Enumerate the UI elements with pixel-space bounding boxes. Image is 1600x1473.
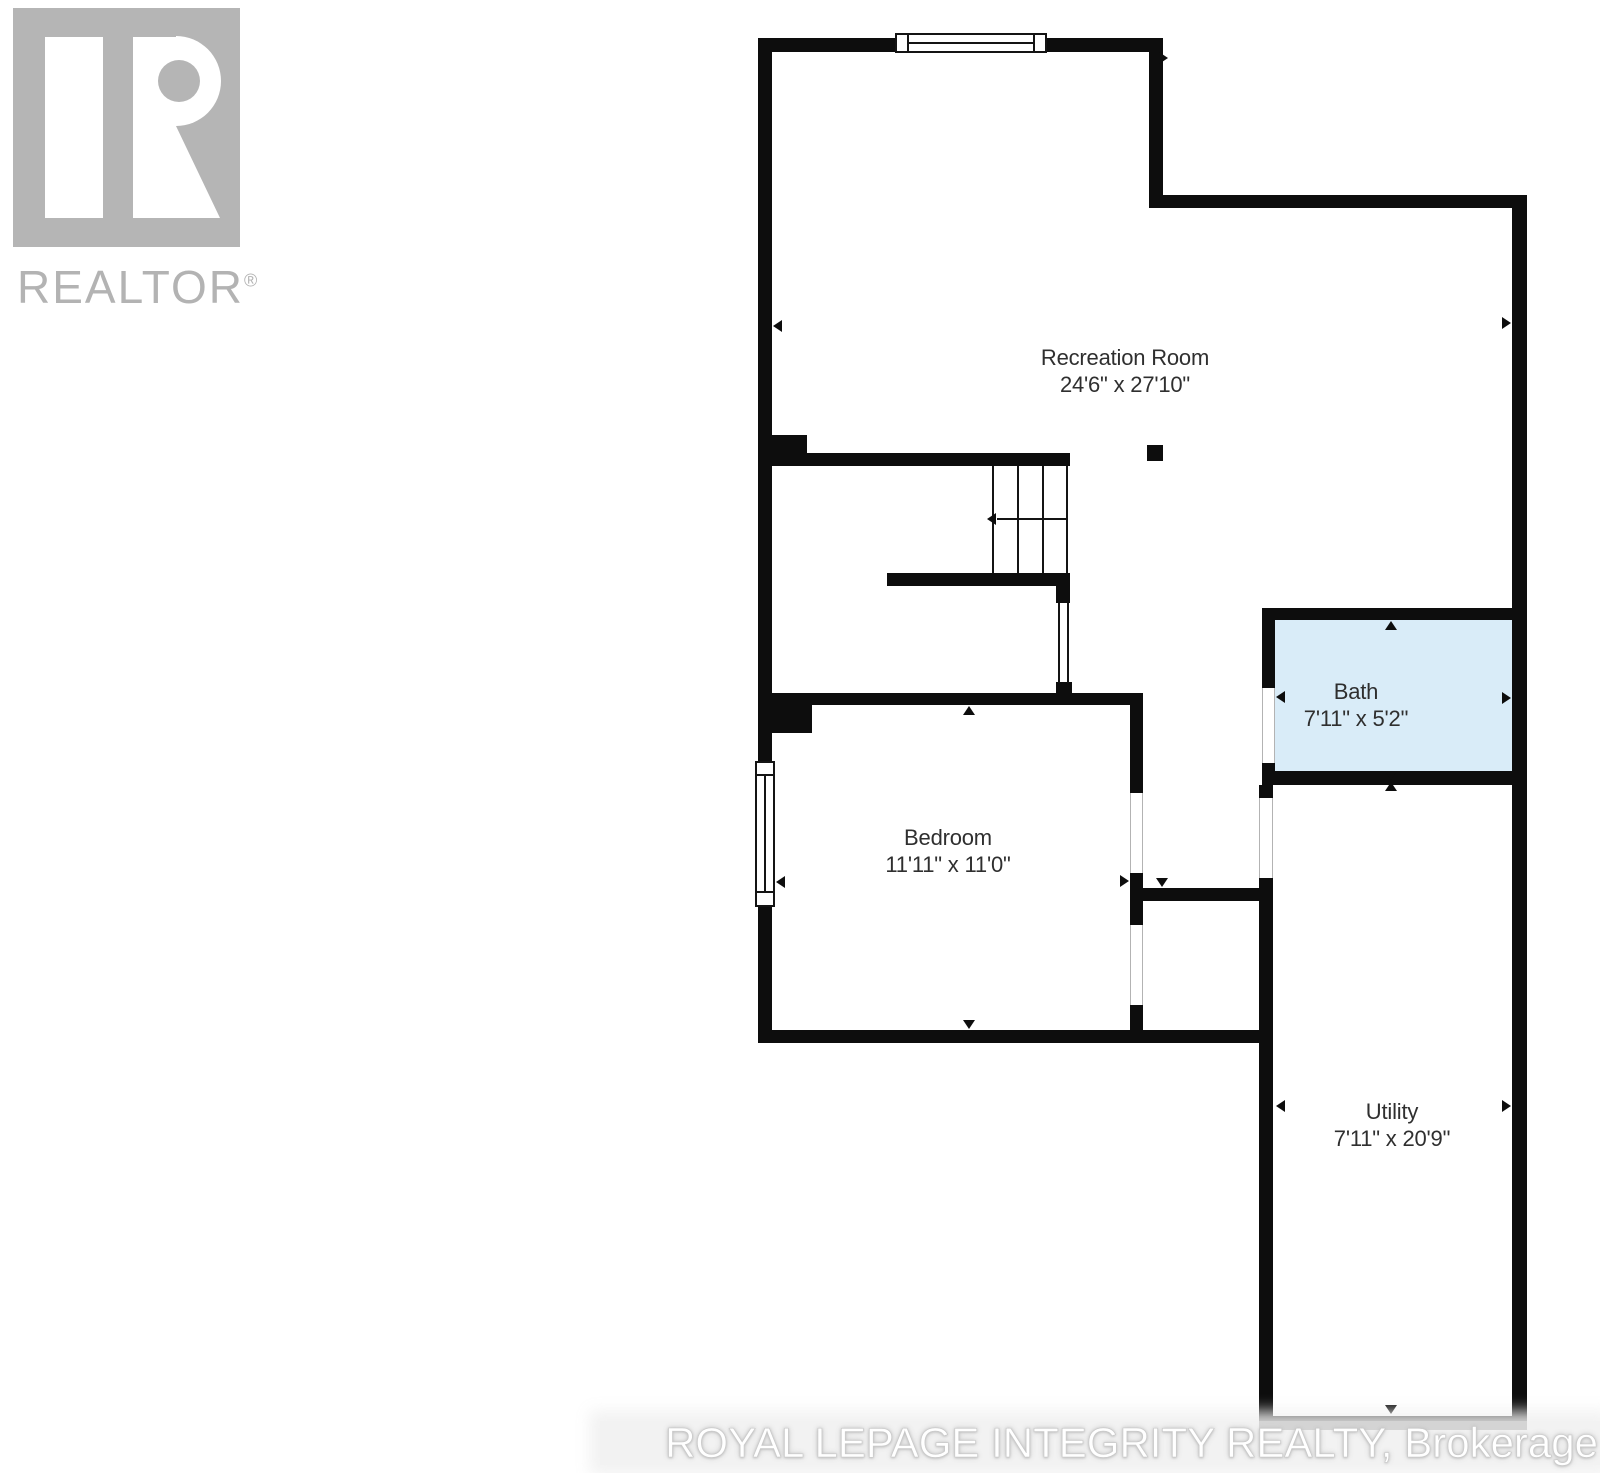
wall-segment [758, 705, 812, 733]
room-dimensions: 24'6" x 27'10" [1041, 371, 1209, 398]
measure-arrow-icon [1159, 52, 1168, 64]
room-name: Bedroom [885, 824, 1010, 851]
measure-arrow-icon [963, 1020, 975, 1029]
wall-segment [758, 435, 807, 453]
door-opening [1274, 688, 1275, 763]
door-opening [1259, 798, 1260, 878]
measure-arrow-icon [1502, 1100, 1511, 1112]
stair-direction-arrow-icon [987, 513, 996, 525]
stair-direction-line [997, 518, 1067, 520]
wall-segment [1149, 195, 1527, 208]
watermark-band: ROYAL LEPAGE INTEGRITY REALTY, Brokerage [600, 1421, 1600, 1465]
wall-segment [1056, 682, 1072, 693]
measure-arrow-icon [1385, 1405, 1397, 1414]
wall-segment [758, 1030, 1263, 1043]
room-label-bath: Bath 7'11" x 5'2" [1304, 678, 1408, 732]
room-name: Bath [1304, 678, 1408, 705]
door-opening [1142, 793, 1143, 873]
wall-segment [758, 693, 1143, 705]
wall-segment [1262, 608, 1512, 620]
measure-arrow-icon [1502, 692, 1511, 704]
window-mullion [1033, 35, 1035, 51]
measure-arrow-icon [1276, 1100, 1285, 1112]
measure-arrow-icon [1276, 691, 1285, 703]
room-label-utility: Utility 7'11" x 20'9" [1334, 1098, 1450, 1152]
door-opening [1142, 925, 1143, 1005]
wall-segment [1130, 693, 1143, 793]
realtor-logo-icon [13, 8, 240, 247]
door-opening [1130, 793, 1131, 873]
window-mullion [757, 774, 773, 776]
measure-arrow-icon [773, 320, 782, 332]
cased-opening [1058, 603, 1060, 683]
measure-arrow-icon [1502, 317, 1511, 329]
measure-arrow-icon [1385, 771, 1397, 780]
floorplan-canvas: REALTOR® [0, 0, 1600, 1473]
wall-segment [758, 38, 772, 762]
wall-segment [1512, 195, 1527, 1430]
wall-segment [772, 453, 1070, 466]
wall-segment [1259, 878, 1273, 1430]
door-opening [1130, 925, 1131, 1005]
wall-segment [758, 907, 772, 1043]
window-mullion [907, 35, 909, 51]
realtor-logo-text: REALTOR® [17, 260, 257, 314]
room-dimensions: 11'11" x 11'0" [885, 851, 1010, 878]
room-dimensions: 7'11" x 5'2" [1304, 705, 1408, 732]
wall-segment [1259, 785, 1273, 798]
measure-arrow-icon [1156, 878, 1168, 887]
wall-segment [887, 573, 1070, 586]
door-opening [1272, 798, 1273, 878]
wall-segment [1149, 52, 1163, 208]
wall-segment [1262, 608, 1275, 688]
wall-segment [1143, 888, 1263, 901]
measure-arrow-icon [1385, 621, 1397, 630]
measure-arrow-icon [963, 706, 975, 715]
room-dimensions: 7'11" x 20'9" [1334, 1125, 1450, 1152]
cased-opening [1067, 603, 1069, 683]
room-label-bedroom: Bedroom 11'11" x 11'0" [885, 824, 1010, 878]
support-column [1147, 445, 1163, 461]
room-name: Utility [1334, 1098, 1450, 1125]
measure-arrow-icon [1120, 875, 1129, 887]
door-opening [1262, 688, 1263, 763]
room-name: Recreation Room [1041, 344, 1209, 371]
room-label-recreation-room: Recreation Room 24'6" x 27'10" [1041, 344, 1209, 398]
brokerage-watermark-text: ROYAL LEPAGE INTEGRITY REALTY, Brokerage [665, 1421, 1598, 1465]
window-glass-line [764, 776, 766, 892]
registered-trademark-symbol: ® [244, 271, 257, 291]
realtor-logo: REALTOR® [13, 8, 240, 252]
wall-segment [1130, 873, 1143, 925]
measure-arrow-icon [1385, 782, 1397, 791]
window-glass-line [909, 42, 1033, 44]
wall-segment [1056, 586, 1070, 603]
measure-arrow-icon [776, 876, 785, 888]
realtor-wordmark: REALTOR [17, 261, 244, 313]
window-mullion [757, 891, 773, 893]
